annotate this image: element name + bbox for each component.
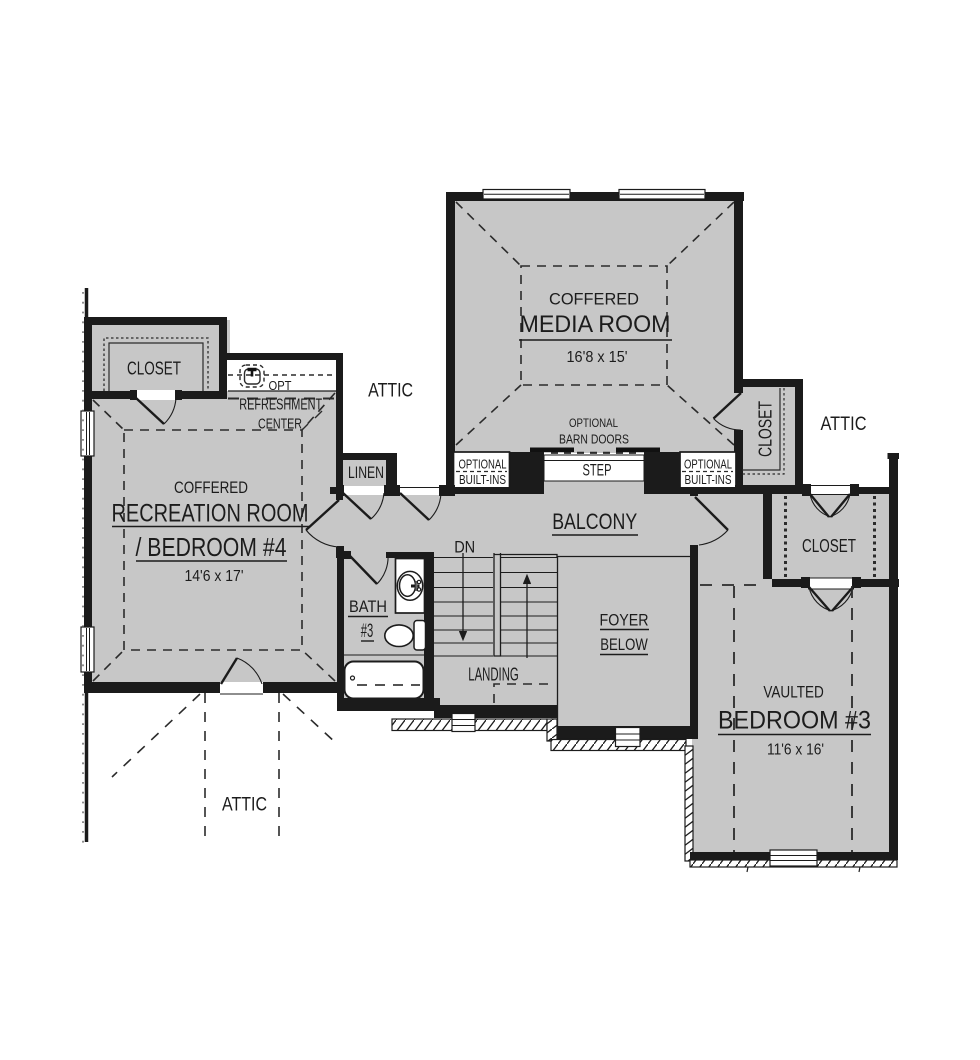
svg-text:OPTIONAL: OPTIONAL: [459, 458, 507, 472]
svg-text:CLOSET: CLOSET: [802, 536, 856, 556]
svg-text:16'8 x 15': 16'8 x 15': [567, 349, 628, 366]
svg-text:COFFERED: COFFERED: [549, 290, 639, 309]
svg-text:CLOSET: CLOSET: [127, 359, 181, 379]
svg-text:FOYER: FOYER: [600, 611, 649, 630]
svg-text:11'6 x 16': 11'6 x 16': [767, 742, 824, 759]
svg-text:OPT: OPT: [269, 378, 292, 393]
svg-text:BARN DOORS: BARN DOORS: [559, 433, 629, 447]
svg-text:CENTER: CENTER: [258, 416, 302, 433]
svg-text:LINEN: LINEN: [348, 464, 384, 482]
svg-text:14'6 x 17': 14'6 x 17': [185, 568, 244, 585]
svg-text:MEDIA ROOM: MEDIA ROOM: [520, 311, 671, 338]
svg-text:BUILT-INS: BUILT-INS: [459, 473, 506, 487]
svg-text:RECREATION ROOM: RECREATION ROOM: [112, 500, 309, 528]
svg-text:VAULTED: VAULTED: [763, 683, 824, 702]
svg-text:REFRESHMENT: REFRESHMENT: [239, 397, 322, 414]
svg-text:ATTIC: ATTIC: [821, 414, 867, 435]
svg-text:LANDING: LANDING: [468, 665, 519, 685]
svg-text:/ BEDROOM #4: / BEDROOM #4: [136, 532, 287, 562]
svg-text:COFFERED: COFFERED: [174, 478, 248, 497]
svg-text:BUILT-INS: BUILT-INS: [685, 473, 732, 487]
svg-text:ATTIC: ATTIC: [222, 795, 267, 816]
svg-text:STEP: STEP: [583, 461, 612, 480]
svg-text:#3: #3: [361, 621, 374, 642]
svg-text:BELOW: BELOW: [600, 635, 648, 654]
svg-text:CLOSET: CLOSET: [756, 401, 776, 457]
svg-text:OPTIONAL: OPTIONAL: [684, 458, 732, 472]
svg-text:BALCONY: BALCONY: [552, 509, 637, 534]
svg-text:OPTIONAL: OPTIONAL: [569, 418, 619, 430]
svg-text:BATH: BATH: [349, 598, 387, 616]
svg-text:BEDROOM #3: BEDROOM #3: [718, 707, 871, 735]
svg-text:ATTIC: ATTIC: [368, 381, 413, 402]
svg-text:DN: DN: [454, 538, 475, 557]
